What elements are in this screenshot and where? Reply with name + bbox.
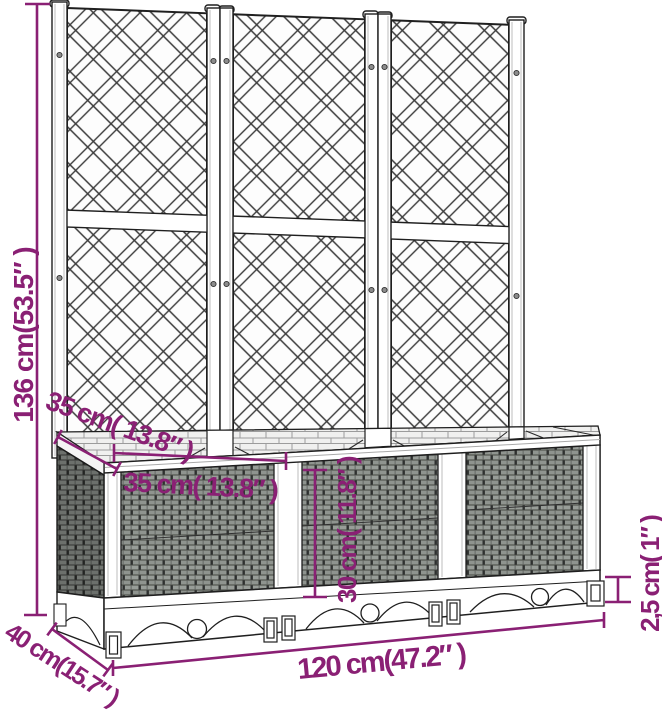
screw-hole	[57, 275, 62, 280]
screw-hole	[211, 58, 216, 63]
base-circle	[188, 620, 207, 639]
trellis-rail	[389, 222, 511, 244]
dim-foot-height-line	[605, 577, 631, 602]
screw-hole	[211, 281, 216, 286]
screw-hole	[224, 58, 229, 63]
diagram-canvas: 136 cm(53.5″ ) 35 cm( 13.8″ ) 35 cm( 13.…	[0, 0, 662, 720]
product-diagram: 136 cm(53.5″ ) 35 cm( 13.8″ ) 35 cm( 13.…	[0, 0, 662, 720]
trellis-post	[207, 8, 220, 462]
planter-post	[104, 462, 121, 598]
dim-inner-height-label: 30 cm( 11.8″ )	[332, 456, 362, 603]
foot-inner	[591, 585, 600, 601]
dimension-total-height: 136 cm(53.5″ )	[8, 4, 50, 615]
dimension-foot-height: 2,5 cm( 1″ )	[605, 515, 662, 632]
back-post	[207, 430, 233, 457]
dim-foot-height-label: 2,5 cm( 1″ )	[635, 515, 662, 632]
trellis-post	[378, 14, 391, 466]
planter	[54, 426, 604, 658]
screw-hole	[514, 293, 519, 298]
foot-inner	[450, 603, 457, 620]
dim-total-height-label: 136 cm(53.5″ )	[8, 247, 39, 422]
trellis-post	[220, 8, 233, 462]
foot-inner	[285, 619, 292, 636]
trellis-post	[365, 14, 378, 466]
screw-hole	[224, 281, 229, 286]
screw-hole	[369, 64, 374, 69]
trellis	[50, 0, 526, 470]
planter-post	[583, 435, 600, 571]
foot-inner	[267, 621, 274, 638]
screw-hole	[369, 287, 374, 292]
foot-inner	[432, 605, 439, 622]
back-post	[365, 428, 391, 447]
trellis-post	[509, 20, 524, 470]
base-circle	[361, 604, 379, 622]
screw-hole	[514, 70, 519, 75]
base-circle	[532, 589, 549, 606]
screw-hole	[382, 287, 387, 292]
foot-inner	[110, 636, 118, 654]
screw-hole	[382, 64, 387, 69]
dim-outer-width-label: 120 cm(47.2″ )	[296, 638, 468, 686]
screw-hole	[57, 52, 62, 57]
back-post	[509, 427, 524, 440]
